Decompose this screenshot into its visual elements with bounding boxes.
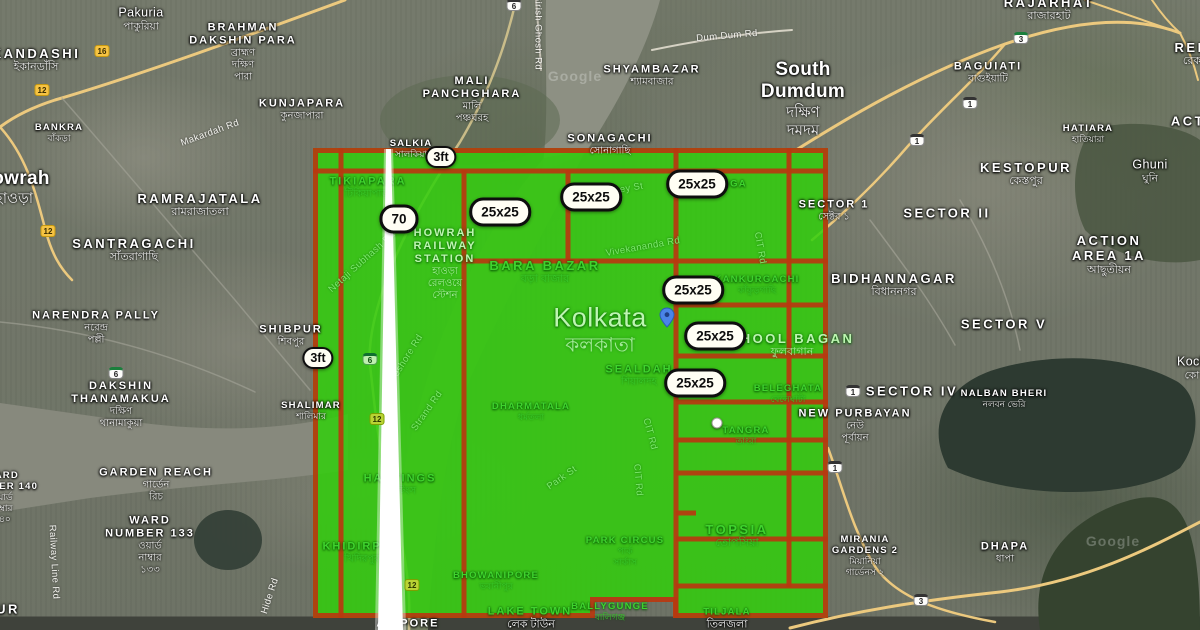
point-marker[interactable] <box>712 418 723 429</box>
map-canvas[interactable]: GoogleGoogle Pakuriaপাকুরিয়াBRAHMAN DAK… <box>0 0 1200 630</box>
location-pin[interactable] <box>660 308 674 327</box>
